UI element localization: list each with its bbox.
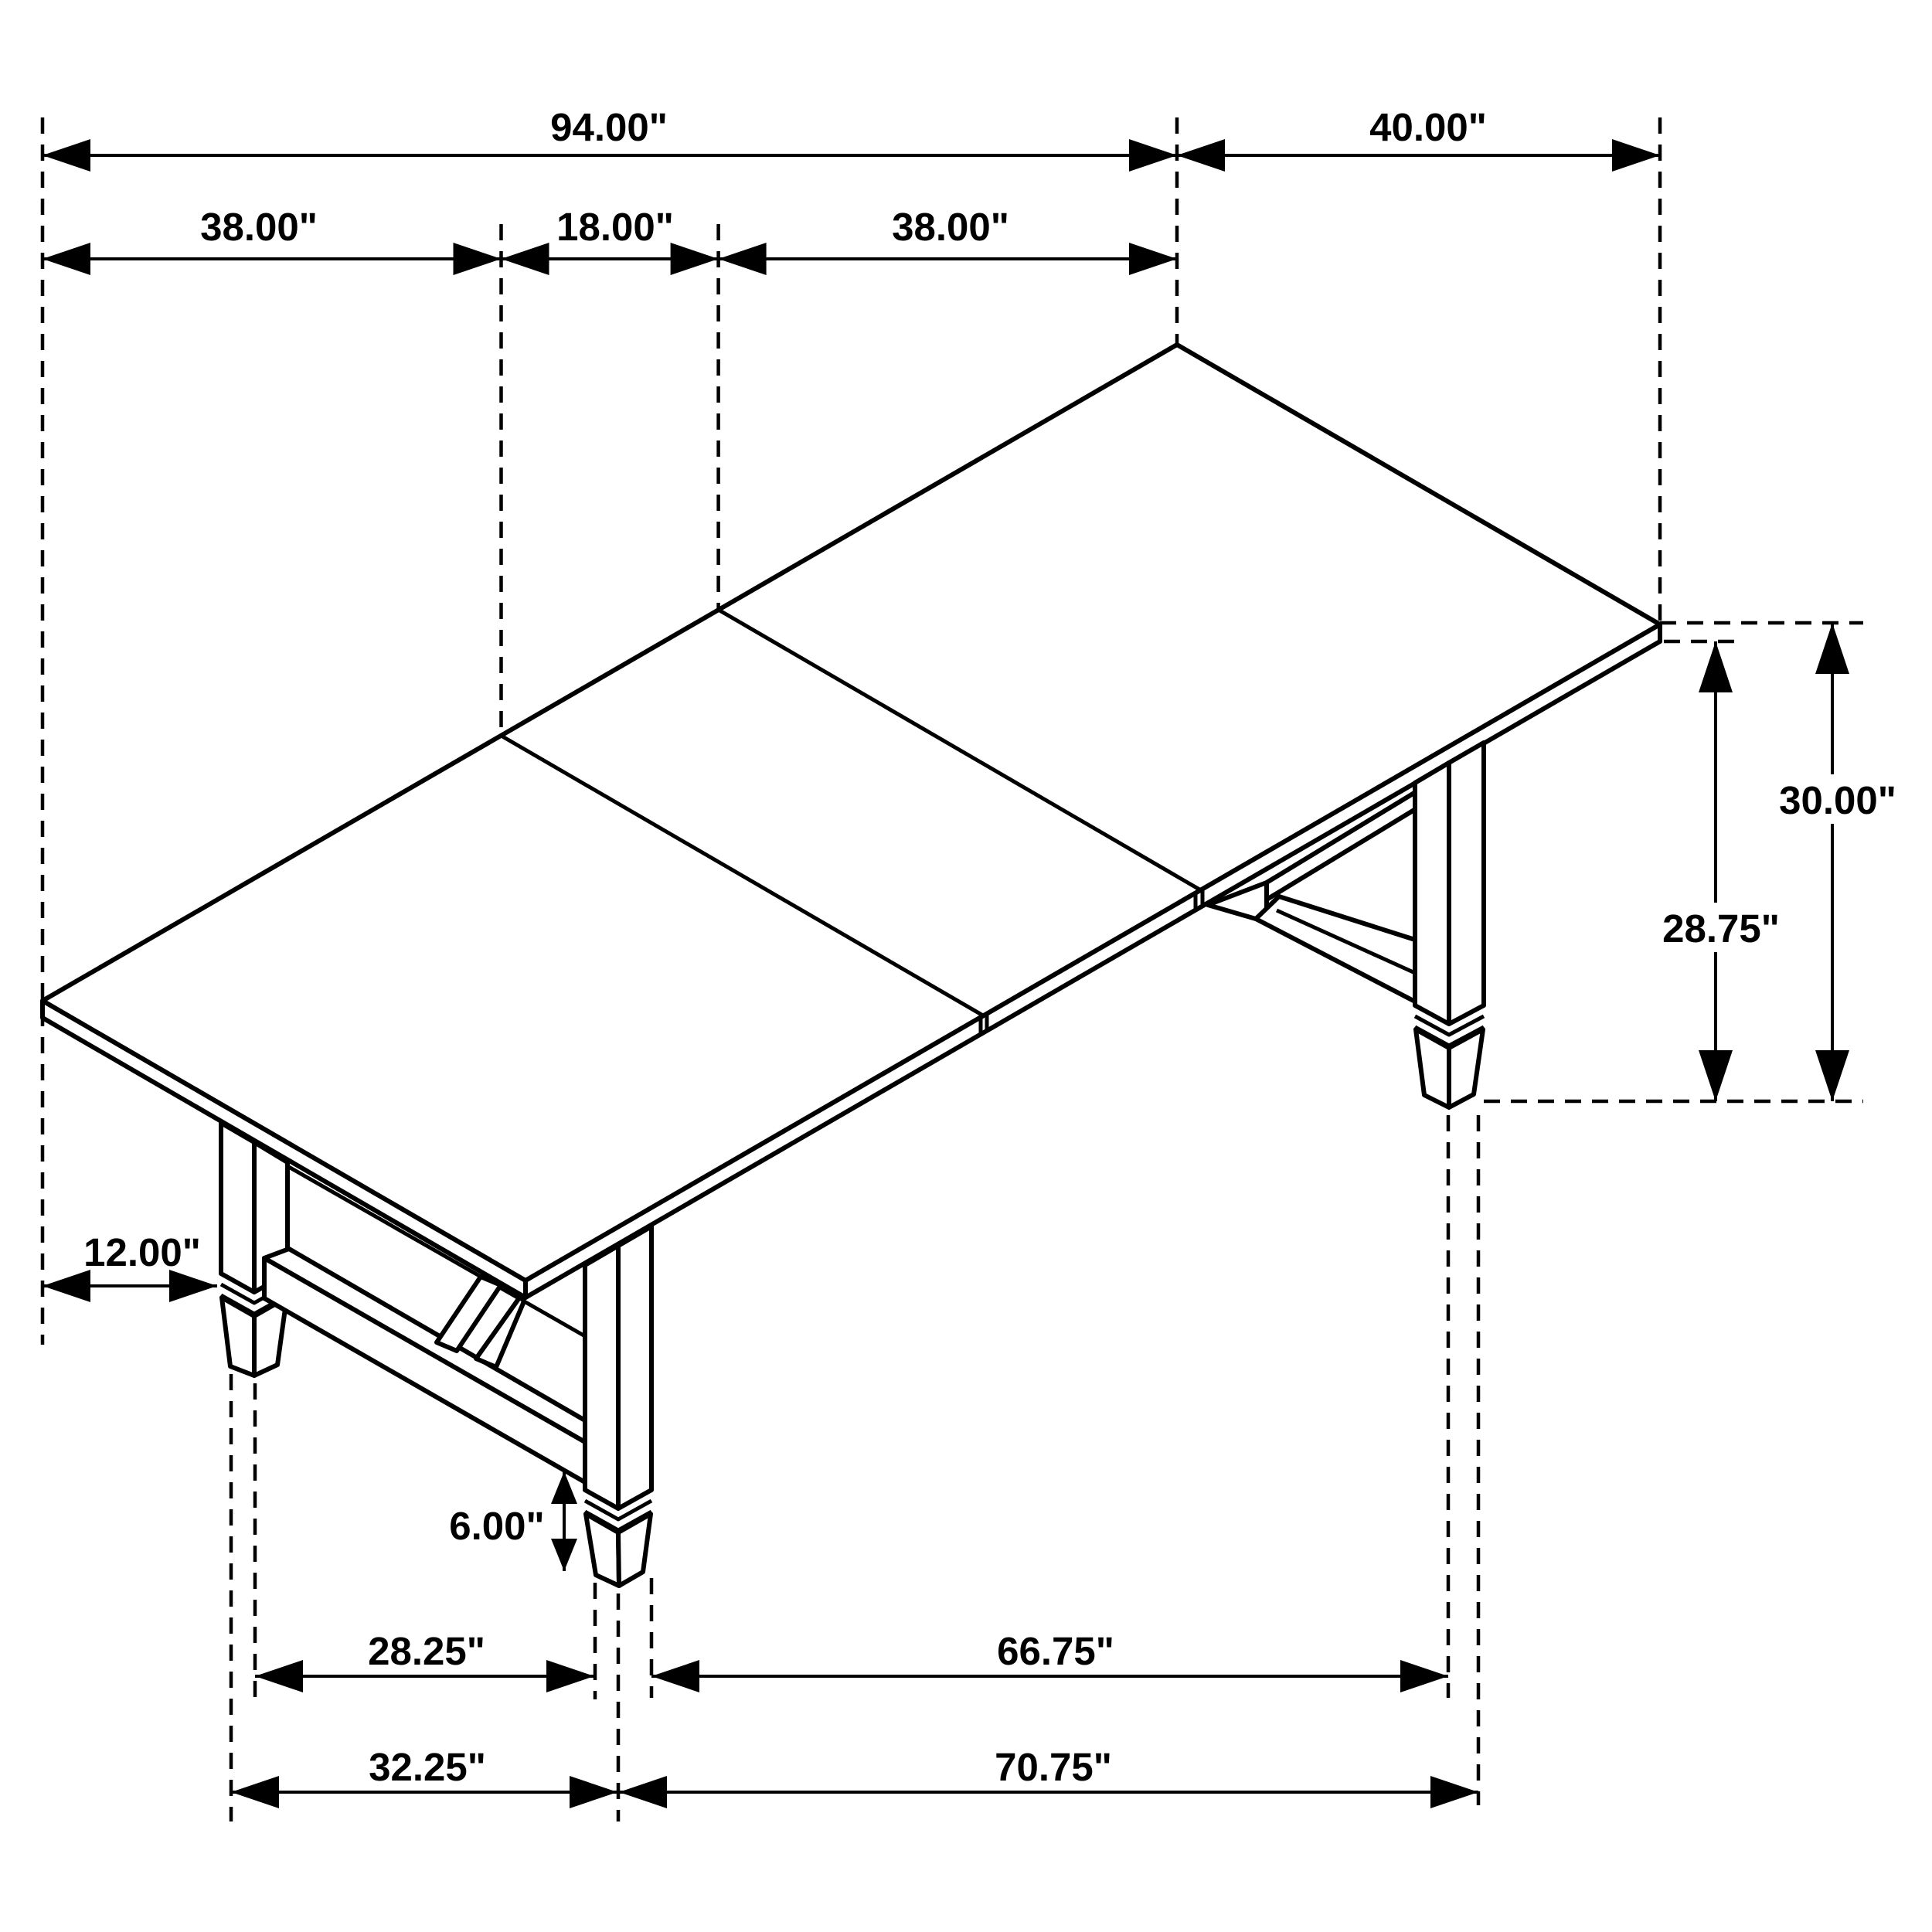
svg-text:18.00": 18.00" <box>556 205 674 249</box>
svg-text:6.00": 6.00" <box>449 1504 544 1548</box>
svg-text:28.25": 28.25" <box>368 1629 485 1673</box>
svg-text:40.00": 40.00" <box>1369 105 1487 149</box>
svg-text:66.75": 66.75" <box>997 1629 1114 1673</box>
svg-text:38.00": 38.00" <box>892 205 1009 249</box>
svg-text:38.00": 38.00" <box>200 205 318 249</box>
svg-text:30.00": 30.00" <box>1779 778 1896 822</box>
svg-text:94.00": 94.00" <box>550 105 668 149</box>
svg-text:28.75": 28.75" <box>1662 906 1780 951</box>
svg-text:70.75": 70.75" <box>995 1745 1112 1789</box>
svg-text:12.00": 12.00" <box>83 1230 201 1274</box>
svg-text:32.25": 32.25" <box>369 1745 486 1789</box>
